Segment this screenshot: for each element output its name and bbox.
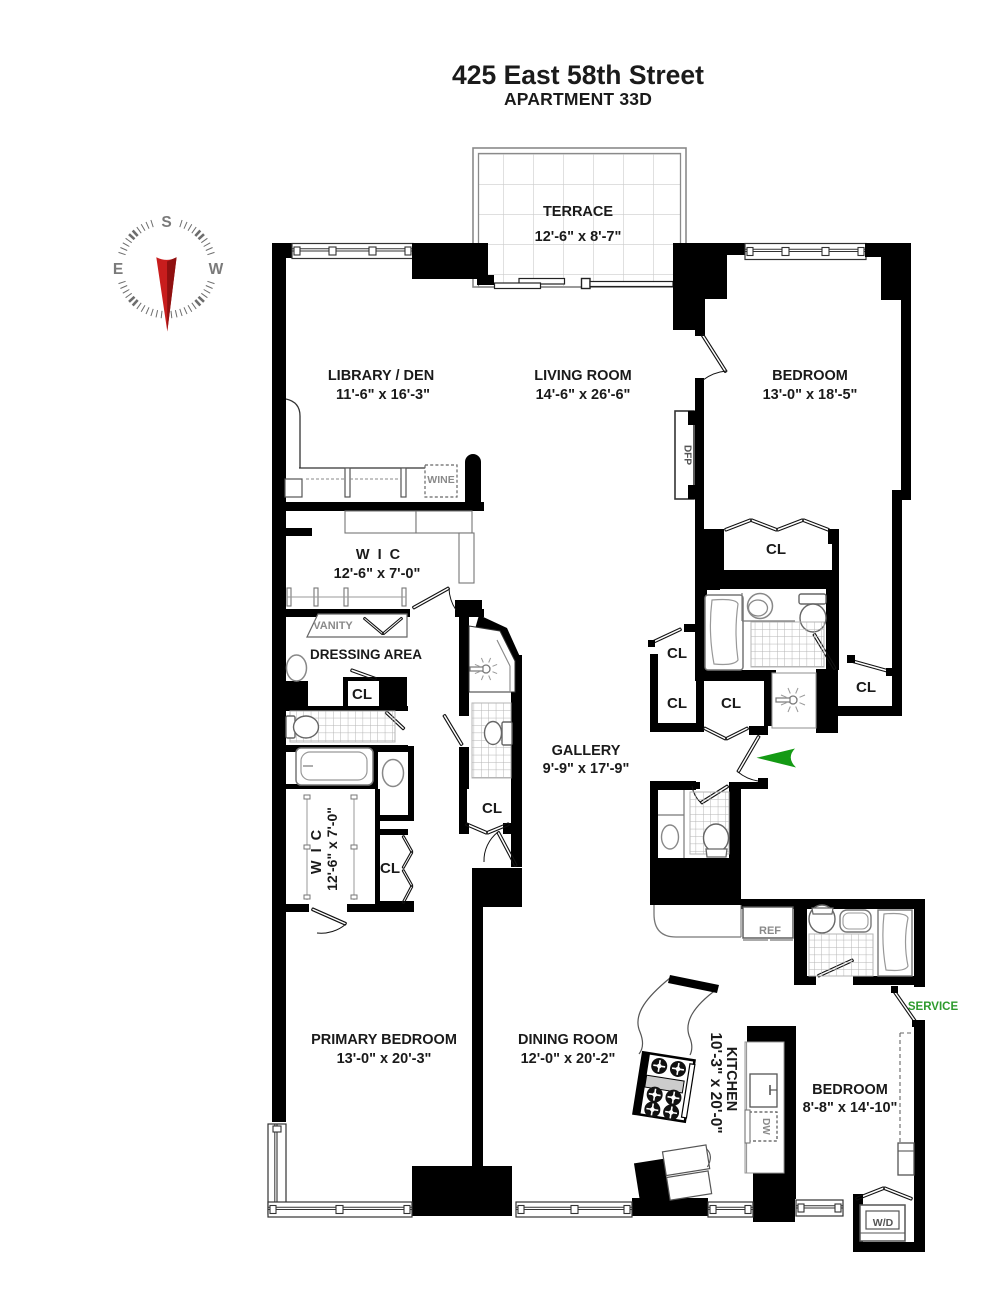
svg-text:W/D: W/D — [873, 1217, 894, 1229]
svg-text:BEDROOM: BEDROOM — [812, 1082, 888, 1098]
svg-text:DFP: DFP — [682, 445, 693, 465]
svg-text:DW: DW — [760, 1118, 771, 1135]
svg-text:CL: CL — [856, 679, 876, 696]
svg-text:E: E — [113, 261, 123, 278]
svg-text:12'-6" x 8'-7": 12'-6" x 8'-7" — [535, 229, 622, 245]
svg-text:LIVING ROOM: LIVING ROOM — [534, 368, 631, 384]
svg-text:CL: CL — [766, 541, 786, 558]
svg-text:PRIMARY BEDROOM: PRIMARY BEDROOM — [311, 1032, 457, 1048]
svg-text:GALLERY: GALLERY — [552, 743, 621, 759]
svg-text:KITCHEN: KITCHEN — [723, 1047, 739, 1111]
svg-text:SERVICE: SERVICE — [908, 1001, 959, 1013]
svg-text:13'-0" x 20'-3": 13'-0" x 20'-3" — [337, 1051, 432, 1067]
svg-text:12'-6" x 7'-0": 12'-6" x 7'-0" — [334, 566, 421, 582]
svg-text:CL: CL — [482, 800, 502, 817]
svg-text:14'-6" x 26'-6": 14'-6" x 26'-6" — [536, 387, 631, 403]
svg-text:REF: REF — [759, 925, 781, 937]
svg-text:VANITY: VANITY — [313, 620, 353, 632]
svg-text:APARTMENT 33D: APARTMENT 33D — [504, 89, 652, 109]
svg-text:WINE: WINE — [427, 474, 454, 486]
svg-text:11'-6" x 16'-3": 11'-6" x 16'-3" — [336, 387, 430, 403]
svg-text:W I C: W I C — [356, 547, 402, 563]
svg-text:12'-0" x 20'-2": 12'-0" x 20'-2" — [521, 1051, 616, 1067]
svg-text:DINING ROOM: DINING ROOM — [518, 1032, 618, 1048]
svg-text:BEDROOM: BEDROOM — [772, 368, 848, 384]
svg-text:W I C: W I C — [309, 828, 325, 874]
svg-text:CL: CL — [721, 695, 741, 712]
svg-text:TERRACE: TERRACE — [543, 204, 613, 220]
svg-text:CL: CL — [667, 695, 687, 712]
svg-text:9'-9" x 17'-9": 9'-9" x 17'-9" — [543, 761, 630, 777]
svg-text:DRESSING AREA: DRESSING AREA — [310, 647, 422, 662]
svg-text:12'-6" x 7'-0": 12'-6" x 7'-0" — [324, 807, 340, 891]
svg-text:S: S — [161, 214, 171, 231]
svg-text:10'-3" x 20'-0": 10'-3" x 20'-0" — [707, 1032, 724, 1133]
svg-text:8'-8" x 14'-10": 8'-8" x 14'-10" — [803, 1100, 898, 1116]
svg-text:CL: CL — [380, 860, 400, 877]
svg-text:LIBRARY / DEN: LIBRARY / DEN — [328, 368, 434, 384]
svg-text:CL: CL — [352, 686, 372, 703]
svg-text:W: W — [209, 261, 224, 278]
svg-text:CL: CL — [667, 645, 687, 662]
svg-text:425 East 58th Street: 425 East 58th Street — [452, 60, 704, 90]
svg-text:13'-0" x 18'-5": 13'-0" x 18'-5" — [763, 387, 858, 403]
